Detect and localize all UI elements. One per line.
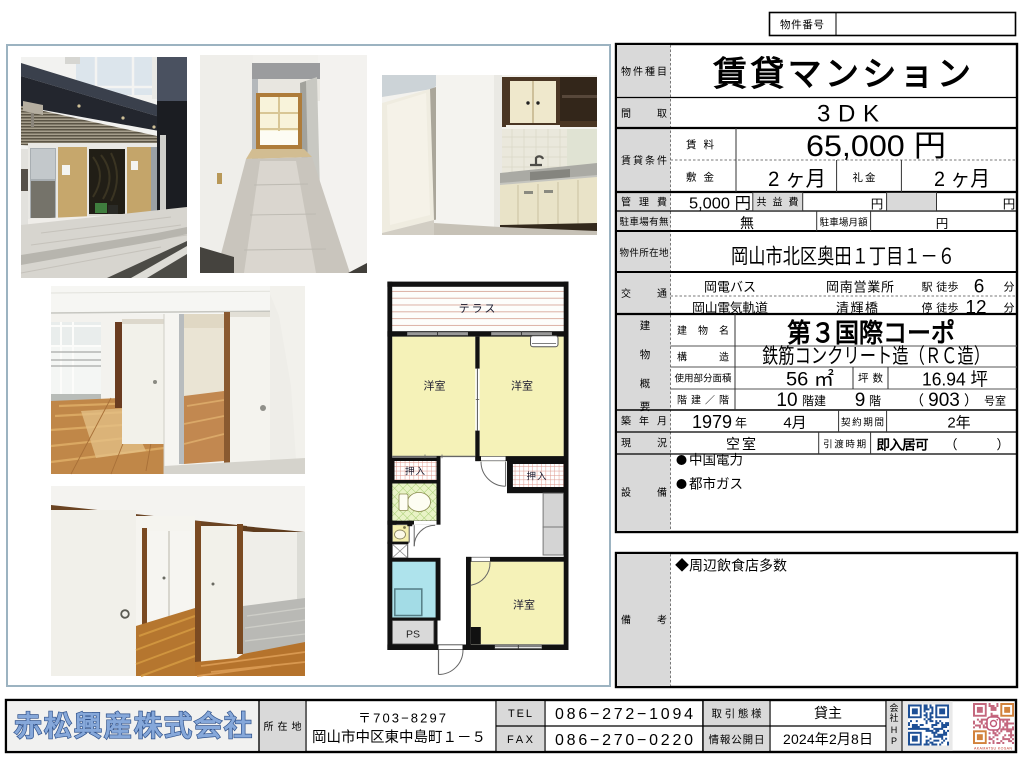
svg-text:物: 物 xyxy=(640,348,651,361)
svg-text:16.94 坪: 16.94 坪 xyxy=(922,370,988,390)
svg-text:◆周辺飲食店多数: ◆周辺飲食店多数 xyxy=(675,558,787,574)
svg-text:都市ガス: 都市ガス xyxy=(689,476,743,492)
svg-text:物件所在地: 物件所在地 xyxy=(620,247,669,259)
svg-text:要: 要 xyxy=(640,401,651,413)
svg-text:物件番号: 物件番号 xyxy=(780,18,824,31)
svg-text:10: 10 xyxy=(776,390,797,411)
svg-text:築年月: 築年月 xyxy=(621,415,667,428)
svg-text:テラス: テラス xyxy=(459,303,498,315)
svg-text:56 ㎡: 56 ㎡ xyxy=(786,368,834,391)
svg-text:9: 9 xyxy=(855,390,866,411)
svg-text:引渡時期: 引渡時期 xyxy=(823,439,866,451)
svg-text:岡山市中区東中島町１－５: 岡山市中区東中島町１－５ xyxy=(312,729,486,746)
svg-text:清輝橋: 清輝橋 xyxy=(836,301,878,316)
svg-text:円: 円 xyxy=(1003,198,1016,212)
svg-text:階建: 階建 xyxy=(802,393,826,408)
svg-text:即入居可: 即入居可 xyxy=(877,438,930,453)
svg-text:赤松興産株式会社: 赤松興産株式会社 xyxy=(14,710,252,742)
svg-text:）: ） xyxy=(996,437,1009,452)
svg-text:使用部分面積: 使用部分面積 xyxy=(675,373,732,385)
svg-text:建物名: 建物名 xyxy=(677,324,729,337)
svg-text:H: H xyxy=(891,725,898,735)
svg-text:中国電力: 中国電力 xyxy=(689,453,743,468)
svg-text:洋室: 洋室 xyxy=(424,379,446,393)
svg-text:65,000 円: 65,000 円 xyxy=(806,130,946,163)
svg-text:岡山市北区奥田１丁目１－６: 岡山市北区奥田１丁目１－６ xyxy=(731,246,955,269)
svg-text:洋室: 洋室 xyxy=(511,379,533,393)
svg-text:駐車場月額: 駐車場月額 xyxy=(820,217,868,229)
svg-text:岡電バス: 岡電バス xyxy=(704,280,756,295)
svg-text:PS: PS xyxy=(406,629,420,641)
svg-text:第３国際コーポ: 第３国際コーポ xyxy=(787,318,955,348)
svg-text:分: 分 xyxy=(1004,302,1015,315)
svg-text:4月: 4月 xyxy=(783,415,806,432)
svg-text:鉄筋コンクリート造（ＲＣ造）: 鉄筋コンクリート造（ＲＣ造） xyxy=(762,345,990,368)
svg-text:契約期間: 契約期間 xyxy=(841,417,884,429)
svg-text:1979: 1979 xyxy=(692,412,732,432)
svg-text:12: 12 xyxy=(965,298,986,319)
svg-text:2024年2月8日: 2024年2月8日 xyxy=(783,731,873,747)
svg-text:AKAMATSU KOSAN: AKAMATSU KOSAN xyxy=(974,747,1012,751)
svg-text:共益費: 共益費 xyxy=(757,196,799,209)
svg-text:駐車場有無: 駐車場有無 xyxy=(620,216,669,228)
svg-text:円: 円 xyxy=(936,217,949,231)
svg-text:概: 概 xyxy=(640,377,651,390)
svg-text:3DK: 3DK xyxy=(817,101,879,128)
svg-text:号室: 号室 xyxy=(984,394,1006,408)
svg-text:年: 年 xyxy=(735,416,747,430)
svg-text:（: （ xyxy=(910,393,924,409)
svg-text:5,000 円: 5,000 円 xyxy=(689,196,751,213)
svg-text:会: 会 xyxy=(889,702,898,713)
svg-text:2 ヶ月: 2 ヶ月 xyxy=(934,167,990,191)
svg-text:貸主: 貸主 xyxy=(814,705,842,721)
svg-text:P: P xyxy=(891,736,897,746)
svg-text:建: 建 xyxy=(640,319,651,332)
svg-text:所在地: 所在地 xyxy=(264,720,302,733)
svg-text:（: （ xyxy=(944,437,957,452)
svg-text:停 徒歩: 停 徒歩 xyxy=(922,301,959,315)
svg-text:903: 903 xyxy=(928,390,960,411)
svg-text:情報公開日: 情報公開日 xyxy=(709,733,765,746)
svg-text:階: 階 xyxy=(869,393,881,408)
svg-text:賃貸マンション: 賃貸マンション xyxy=(712,56,971,94)
svg-text:TEL: TEL xyxy=(508,708,532,720)
svg-text:洋室: 洋室 xyxy=(513,598,535,612)
svg-text:礼金: 礼金 xyxy=(853,171,877,184)
svg-text:岡山電気軌道: 岡山電気軌道 xyxy=(692,301,768,316)
svg-text:駅 徒歩: 駅 徒歩 xyxy=(922,280,959,294)
svg-text:2年: 2年 xyxy=(947,415,970,432)
svg-text:6: 6 xyxy=(974,277,985,298)
svg-text:押入: 押入 xyxy=(526,471,547,483)
svg-text:管理費: 管理費 xyxy=(621,196,667,209)
svg-text:2 ヶ月: 2 ヶ月 xyxy=(768,167,826,191)
svg-text:FAX: FAX xyxy=(507,734,534,746)
svg-text:無: 無 xyxy=(740,215,754,231)
svg-text:岡南営業所: 岡南営業所 xyxy=(826,280,894,295)
svg-text:社: 社 xyxy=(889,712,898,723)
svg-text:円: 円 xyxy=(871,198,884,212)
svg-text:）: ） xyxy=(964,393,978,409)
svg-text:押入: 押入 xyxy=(405,466,426,478)
svg-text:分: 分 xyxy=(1004,281,1015,294)
